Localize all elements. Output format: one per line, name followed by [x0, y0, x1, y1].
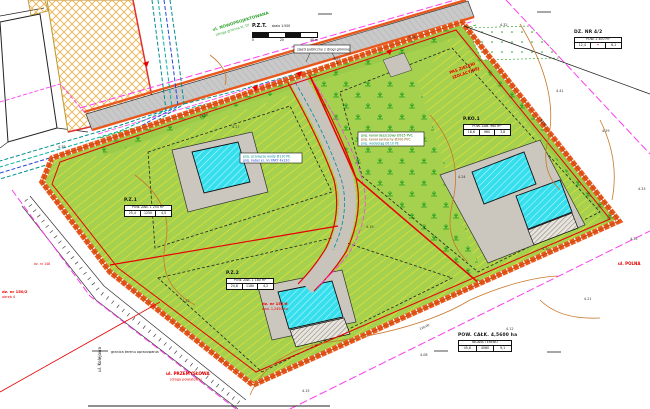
svg-text:4.15: 4.15: [302, 389, 310, 393]
scale-bar: P.Z.T. skala 1:500 0 20 40 m: [252, 12, 318, 42]
svg-text:pow. 1,2450 ha: pow. 1,2450 ha: [262, 307, 288, 311]
svg-text:obręb 4: obręb 4: [2, 295, 15, 299]
scale-bar-title: P.Z.T.: [252, 23, 267, 29]
info-table-pko1: P.KO.1 POW. ZAB. 960 m² 18,6 960 3,8: [463, 118, 511, 136]
street-label-west: ul. Kolejowa: [97, 347, 102, 372]
svg-text:4.22: 4.22: [182, 299, 190, 303]
svg-text:4.19: 4.19: [366, 225, 374, 229]
svg-text:4.25: 4.25: [333, 57, 341, 61]
info-table-pz1: P.Z.1 POW. ZAB. 1 254 m² 25,4 1250 4,5: [124, 199, 172, 217]
utility-note-box-1: proj. przyłącze wody Ø110 PE proj. kabel…: [240, 153, 302, 163]
svg-text:120,00: 120,00: [419, 323, 430, 331]
svg-text:dz. nr 148: dz. nr 148: [34, 262, 50, 266]
svg-text:4.24: 4.24: [458, 175, 466, 179]
info-table-pz2: P.Z.2 POW. ZAB. 1 180 m² 24,8 1180 4,2: [226, 272, 274, 290]
svg-text:zjazd publiczny z drogi gminne: zjazd publiczny z drogi gminnej: [297, 48, 350, 52]
site-plan-drawing: zjazd publiczny z drogi gminnej proj. pr…: [0, 0, 650, 409]
svg-text:4.27: 4.27: [232, 125, 240, 129]
svg-text:proj. wodociąg Ø110 PE: proj. wodociąg Ø110 PE: [361, 141, 399, 146]
legend-boundary-label: granica terenu opracowania: [111, 350, 159, 354]
svg-text:proj. kabel el. nn YAKY 4x120: proj. kabel el. nn YAKY 4x120: [243, 159, 290, 163]
svg-text:4.30: 4.30: [542, 247, 550, 251]
svg-text:dz. nr 152/6: dz. nr 152/6: [262, 301, 288, 306]
info-table-balance: POW. CAŁK. 4,5600 ha BILANS TERENU 45,6 …: [458, 334, 517, 352]
svg-text:dz. nr 150/2: dz. nr 150/2: [2, 289, 28, 294]
svg-text:4.41: 4.41: [556, 89, 564, 93]
svg-text:4.38: 4.38: [58, 145, 66, 149]
svg-text:4.21: 4.21: [584, 297, 592, 301]
svg-text:4.12: 4.12: [506, 327, 514, 331]
red-leader-line: [0, 302, 160, 392]
svg-text:4.29: 4.29: [602, 129, 610, 133]
svg-text:4.35: 4.35: [630, 237, 638, 241]
street-label-south: ul. PRZEMYSŁOWA: [166, 371, 210, 376]
svg-text:4.33: 4.33: [638, 187, 646, 191]
svg-text:4.32: 4.32: [500, 23, 508, 27]
utility-note-box-2: proj. kanał deszczowy Ø315 PVC proj. kan…: [358, 132, 424, 146]
site-plan-screenshot: zjazd publiczny z drogi gminnej proj. pr…: [0, 0, 650, 409]
svg-text:4.18: 4.18: [408, 35, 416, 39]
svg-text:4.08: 4.08: [420, 353, 428, 357]
table-caption: P.Z.1: [124, 199, 172, 204]
info-table-dz: DZ. NR 4/2 POW. 2 400 m² 12,4 • 6,1: [574, 31, 622, 49]
street-label-east: ul. POLNA: [618, 261, 641, 266]
svg-text:(droga powiatowa): (droga powiatowa): [170, 378, 202, 382]
